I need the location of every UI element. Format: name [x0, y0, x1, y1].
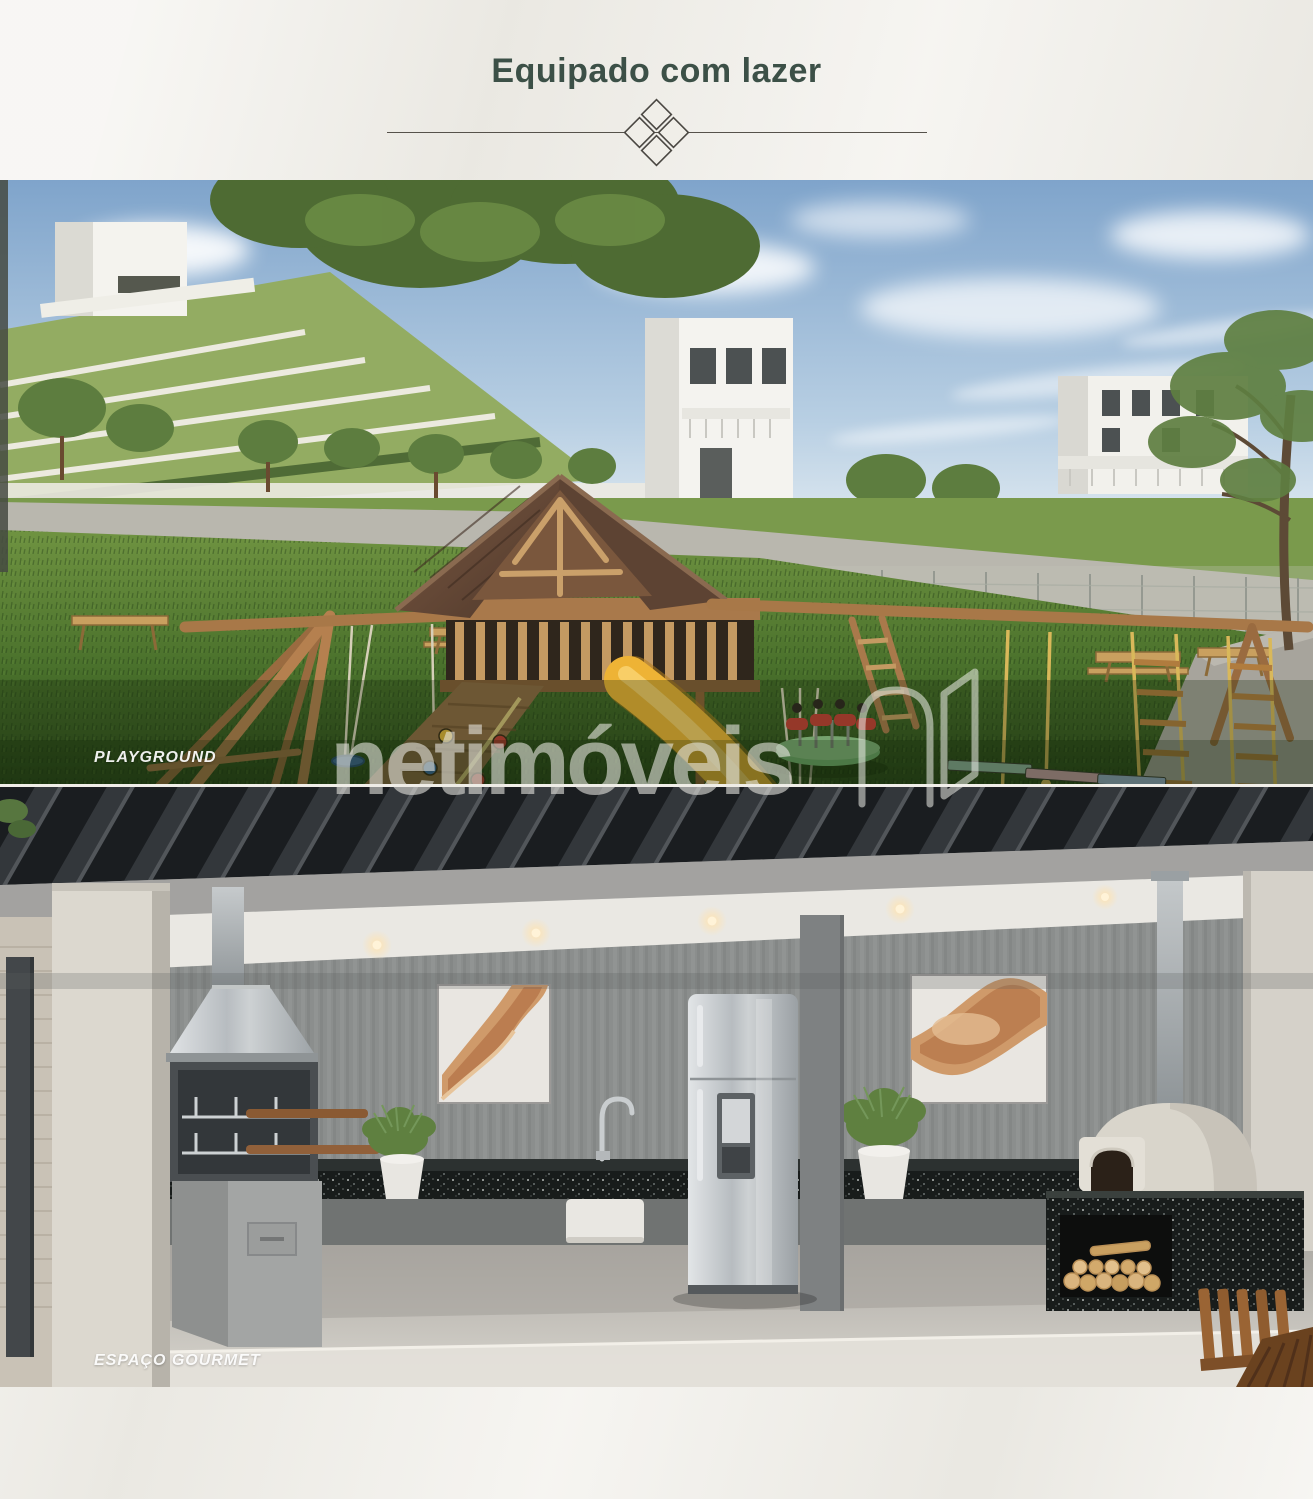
playground-render	[0, 180, 1313, 784]
espaco-gourmet-photo[interactable]: ESPAÇO GOURMET	[0, 787, 1313, 1387]
photo-label-playground: PLAYGROUND	[94, 750, 217, 766]
photo-stack: PLAYGROUND	[0, 180, 1313, 1387]
page-title: Equipado com lazer	[0, 0, 1313, 91]
diamond-ornament-icon	[618, 98, 696, 168]
photo-label-espaco-gourmet: ESPAÇO GOURMET	[94, 1353, 261, 1369]
espaco-gourmet-render	[0, 787, 1313, 1387]
divider	[387, 113, 927, 153]
brochure-page: Equipado com lazer	[0, 0, 1313, 1499]
header: Equipado com lazer	[0, 0, 1313, 180]
playground-photo[interactable]: PLAYGROUND	[0, 180, 1313, 784]
